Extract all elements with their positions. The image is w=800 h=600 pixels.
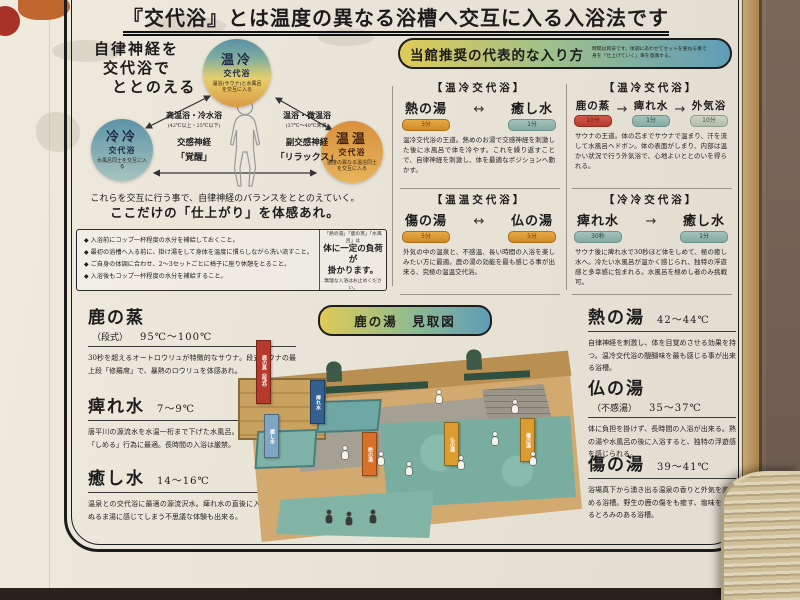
method-box-warm-warm: 【温温交代浴】 傷の湯 5分 ↔ 仏の湯 5分 外気の中の温泉と、不感温、長い時… xyxy=(398,192,560,296)
bather-figure xyxy=(378,452,384,465)
map-banner-iyashi-mizu: 癒し水 xyxy=(264,414,279,458)
intro-summary-line2: ここだけの「仕上がり」を体感あれ。 xyxy=(62,202,388,221)
photo-scene: 『交代浴』とは温度の異なる浴槽へ交互に入る入浴法です 自律神経を 交代浴で とと… xyxy=(0,0,800,600)
bather-figure xyxy=(346,512,352,525)
diamond-bullet-icon: ◆ xyxy=(84,249,89,256)
method-divider-horizontal xyxy=(572,188,732,189)
methods-header-pill: 当館推奨の代表的な入り方 時間は目安です。体調にあわせてセットを重ねる事で身を「… xyxy=(398,38,732,69)
bath-step: 仏の湯 5分 xyxy=(508,210,556,243)
bather-figure xyxy=(458,456,464,469)
bather-figure xyxy=(530,452,536,465)
both-ways-arrow-icon: ↔ xyxy=(474,102,485,117)
circle-warm-cold-bathing: 温冷 交代浴 温浴(サウナ)と水風呂を交互に入る xyxy=(203,39,271,107)
diamond-bullet-icon: ◆ xyxy=(84,237,89,244)
duration-badge: 10分 xyxy=(690,115,728,127)
right-arrow-icon: → xyxy=(617,102,628,117)
duration-badge: 30秒 xyxy=(574,231,622,243)
bather-figure xyxy=(406,462,412,475)
column-divider xyxy=(392,86,393,286)
map-banner-hotoke-no-yu: 仏の湯 xyxy=(444,422,459,466)
map-banner-atsu-no-yu: 熱の湯 xyxy=(362,432,377,476)
method-box-warm-cold-1: 【温冷交代浴】 熱の湯 3分 ↔ 癒し水 1分 温冷交代浴の王道。熱めのお湯で交… xyxy=(398,80,560,184)
bather-figure xyxy=(342,446,348,459)
caution-item: ◆最初の浴槽へ入る前に、掛け湯をして身体を温度に慣らしながら洗い流すこと。 xyxy=(84,247,313,259)
bath-step: 外気浴 10分 xyxy=(690,98,728,127)
duration-badge: 1分 xyxy=(508,119,556,131)
method-divider-horizontal xyxy=(400,188,560,189)
bathhouse-floor-map: 鹿の蒸（段式） 痺れ水 癒し水 熱の湯 仏の湯 傷の湯 xyxy=(230,334,582,542)
floor-shadow xyxy=(0,588,800,600)
bath-step: 痺れ水 1分 xyxy=(632,98,670,127)
diamond-bullet-icon: ◆ xyxy=(84,273,89,280)
bath-info-kizu-no-yu: 傷の湯39〜41℃ 浴場真下から湧き出る温泉の香りと外気を楽しめる浴槽。野生の鹿… xyxy=(588,450,736,522)
caution-item: ◆ご自身の体調に合わせ、2〜3セットごとに椅子に座り休憩をとること。 xyxy=(84,259,313,271)
bath-step: 癒し水 1分 xyxy=(680,210,728,243)
bath-step: 癒し水 1分 xyxy=(508,98,556,131)
map-banner-sauna: 鹿の蒸（段式） xyxy=(256,340,271,404)
duration-badge: 3分 xyxy=(402,119,450,131)
rattan-basket xyxy=(721,471,800,600)
caution-item: ◆入浴前にコップ一杯程度の水分を補給しておくこと。 xyxy=(84,235,313,247)
circle-cold-cold-bathing: 冷冷 交代浴 水風呂同士を交互に入る xyxy=(91,119,153,181)
right-arrow-icon: → xyxy=(675,102,686,117)
bath-step: 傷の湯 5分 xyxy=(402,210,450,243)
parasympathetic-label: 温浴・微温浴 (37℃〜40℃未満) 副交感神経 「リラックス」 xyxy=(254,110,360,163)
caution-side-note: 「熱の湯」「鹿の蒸」「水風呂」は 体に一定の負荷が 掛かります。 無理な入浴はお… xyxy=(319,230,386,290)
red-swirl-decoration xyxy=(0,6,20,36)
bath-step: 熱の湯 3分 xyxy=(402,98,450,131)
method-box-cold-cold: 【冷冷交代浴】 痺れ水 30秒 → 癒し水 1分 サウナ後に痺れ水で30秒ほど体… xyxy=(570,192,732,296)
bathing-guide-poster: 『交代浴』とは温度の異なる浴槽へ交互に入る入浴法です 自律神経を 交代浴で とと… xyxy=(0,0,742,588)
bath-step: 鹿の蒸 10分 xyxy=(574,98,612,127)
bath-info-hotoke-no-yu: 仏の湯 （不感湯）35〜37℃ 体に負担を掛けず、長時間の入浴が出来る。熱の湯や… xyxy=(588,374,736,461)
poster-title: 『交代浴』とは温度の異なる浴槽へ交互に入る入浴法です xyxy=(92,2,700,31)
bather-figure xyxy=(436,390,442,403)
caution-box: ◆入浴前にコップ一杯程度の水分を補給しておくこと。 ◆最初の浴槽へ入る前に、掛け… xyxy=(76,229,387,291)
bath-step: 痺れ水 30秒 xyxy=(574,210,622,243)
map-banner-shibire-mizu: 痺れ水 xyxy=(310,380,325,424)
duration-badge: 5分 xyxy=(508,231,556,243)
both-ways-arrow-icon: ↔ xyxy=(474,214,485,229)
caution-list: ◆入浴前にコップ一杯程度の水分を補給しておくこと。 ◆最初の浴槽へ入る前に、掛け… xyxy=(77,230,319,290)
diamond-bullet-icon: ◆ xyxy=(84,261,89,268)
map-cold-plunge-pool xyxy=(316,399,382,433)
right-arrow-icon: → xyxy=(646,214,657,229)
bather-figure xyxy=(492,432,498,445)
method-box-warm-cold-2: 【温冷交代浴】 鹿の蒸 10分 → 痺れ水 1分 → 外気浴 10分 サウナの王… xyxy=(570,80,732,184)
bather-figure xyxy=(326,510,332,523)
orange-cloud-decoration xyxy=(18,0,70,20)
duration-badge: 1分 xyxy=(680,231,728,243)
duration-badge: 1分 xyxy=(632,115,670,127)
bather-figure xyxy=(370,510,376,523)
map-title-pill: 鹿の湯 見取図 xyxy=(318,305,492,336)
duration-badge: 10分 xyxy=(574,115,612,127)
caution-item: ◆入浴後もコップ一杯程度の水分を補給すること。 xyxy=(84,271,313,283)
duration-badge: 5分 xyxy=(402,231,450,243)
method-divider-vertical xyxy=(566,84,567,290)
methods-header-note: 時間は目安です。体調にあわせてセットを重ねる事で身を「仕上げていく」事を意識する… xyxy=(592,47,707,60)
sympathetic-label: 高温浴・冷水浴 (42℃以上・25℃以下) 交感神経 「覚醒」 xyxy=(146,110,242,163)
bather-figure xyxy=(512,400,518,413)
methods-header-title: 当館推奨の代表的な入り方 xyxy=(410,44,584,64)
bath-info-atsu-no-yu: 熱の湯42〜44℃ 自律神経を刺激し、体を目覚めさせる効果を持つ。温冷交代浴の醍… xyxy=(588,303,736,375)
